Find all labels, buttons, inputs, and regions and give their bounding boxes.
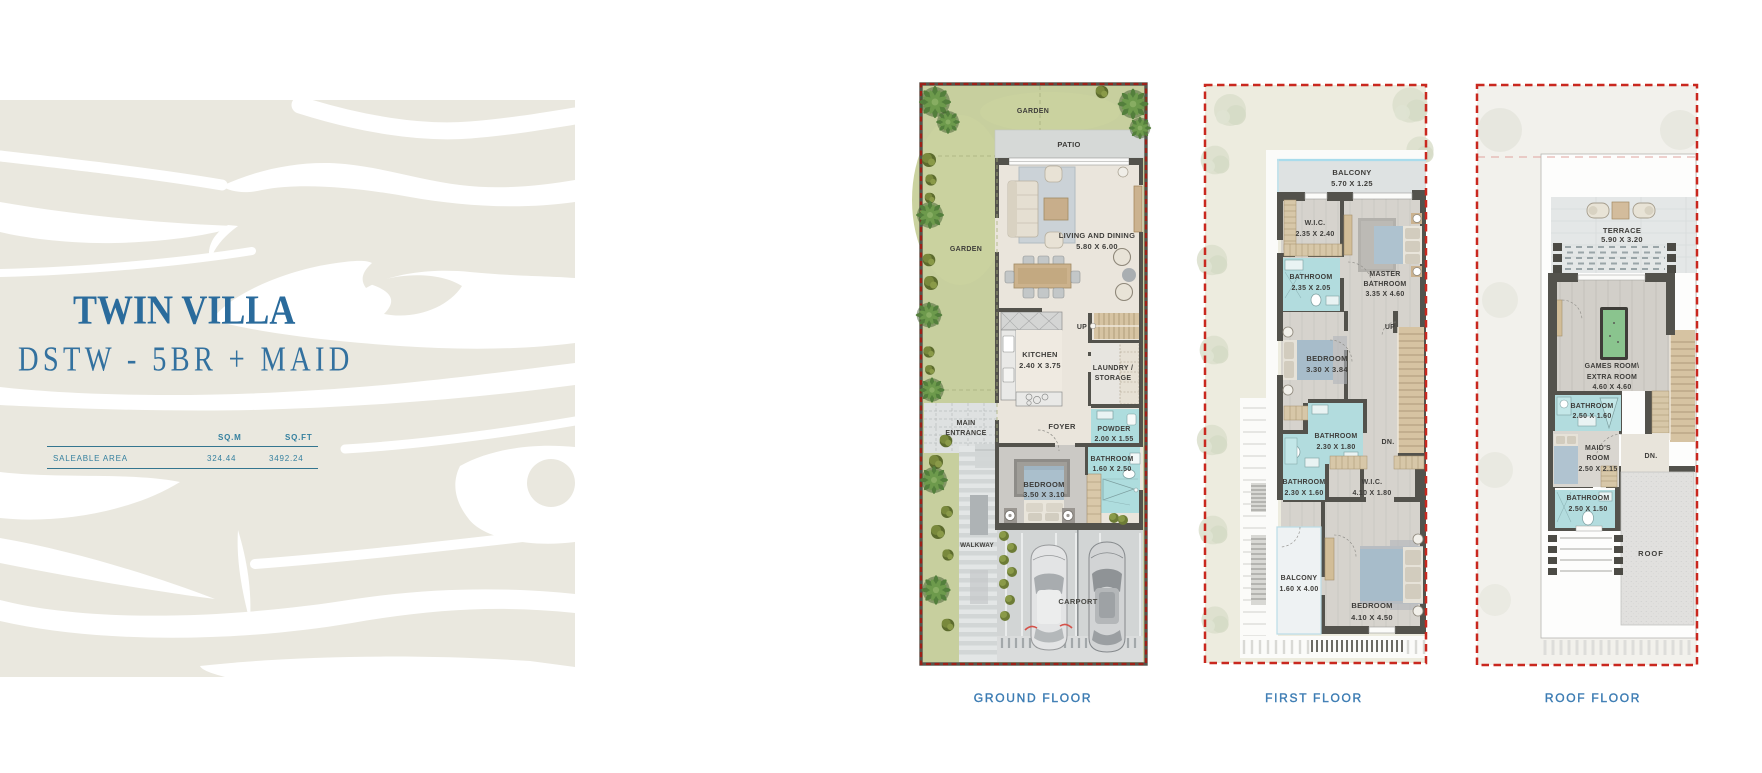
svg-text:GARDEN: GARDEN xyxy=(950,246,982,253)
svg-text:WALKWAY: WALKWAY xyxy=(960,542,994,549)
svg-text:PATIO: PATIO xyxy=(1057,140,1080,149)
svg-text:DN.: DN. xyxy=(1382,439,1395,446)
svg-text:TERRACE: TERRACE xyxy=(1603,226,1641,235)
svg-text:W.I.C.: W.I.C. xyxy=(1305,220,1326,227)
svg-text:5.70 X 1.25: 5.70 X 1.25 xyxy=(1331,179,1373,188)
svg-text:BALCONY: BALCONY xyxy=(1332,168,1371,177)
svg-text:LIVING AND DINING: LIVING AND DINING xyxy=(1059,231,1136,240)
svg-text:UP: UP xyxy=(1077,324,1087,331)
svg-text:STORAGE: STORAGE xyxy=(1095,375,1132,382)
svg-text:5.80 X 6.00: 5.80 X 6.00 xyxy=(1076,242,1118,251)
svg-text:BATHROOM: BATHROOM xyxy=(1363,281,1406,288)
svg-text:LAUNDRY /: LAUNDRY / xyxy=(1093,365,1133,372)
svg-text:BATHROOM: BATHROOM xyxy=(1282,479,1325,486)
svg-text:W.I.C.: W.I.C. xyxy=(1362,479,1383,486)
svg-text:ROOF: ROOF xyxy=(1638,549,1664,558)
svg-text:POWDER: POWDER xyxy=(1097,426,1130,433)
svg-text:2.50 X 1.50: 2.50 X 1.50 xyxy=(1568,506,1607,513)
svg-text:4.60 X 4.60: 4.60 X 4.60 xyxy=(1592,384,1631,391)
svg-text:GARDEN: GARDEN xyxy=(1017,108,1049,115)
svg-text:2.30 X 1.60: 2.30 X 1.60 xyxy=(1284,490,1323,497)
svg-text:MAIN: MAIN xyxy=(956,420,975,427)
svg-text:FOYER: FOYER xyxy=(1048,422,1076,431)
svg-text:DN.: DN. xyxy=(1645,453,1658,460)
svg-text:BEDROOM: BEDROOM xyxy=(1351,601,1392,610)
svg-text:3.35 X 4.60: 3.35 X 4.60 xyxy=(1365,291,1404,298)
svg-text:3.50 X 3.10: 3.50 X 3.10 xyxy=(1023,490,1065,499)
svg-text:2.00 X 1.55: 2.00 X 1.55 xyxy=(1094,436,1133,443)
svg-text:MAID'S: MAID'S xyxy=(1585,445,1611,452)
svg-text:1.60 X 2.50: 1.60 X 2.50 xyxy=(1092,466,1131,473)
svg-text:BEDROOM: BEDROOM xyxy=(1023,480,1064,489)
svg-text:BATHROOM: BATHROOM xyxy=(1314,433,1357,440)
svg-text:1.60 X 4.00: 1.60 X 4.00 xyxy=(1279,586,1318,593)
svg-text:BATHROOM: BATHROOM xyxy=(1566,495,1609,502)
svg-text:BATHROOM: BATHROOM xyxy=(1090,456,1133,463)
svg-text:ENTRANCE: ENTRANCE xyxy=(945,430,986,437)
svg-text:ROOM: ROOM xyxy=(1587,455,1610,462)
svg-text:BEDROOM: BEDROOM xyxy=(1306,354,1347,363)
svg-text:2.40 X 3.75: 2.40 X 3.75 xyxy=(1019,361,1061,370)
svg-text:2.50 X 1.60: 2.50 X 1.60 xyxy=(1572,413,1611,420)
svg-text:GAMES ROOM\: GAMES ROOM\ xyxy=(1585,363,1640,370)
svg-text:CARPORT: CARPORT xyxy=(1058,597,1097,606)
svg-text:EXTRA ROOM: EXTRA ROOM xyxy=(1587,374,1637,381)
svg-text:BATHROOM: BATHROOM xyxy=(1289,274,1332,281)
svg-text:5.90 X 3.20: 5.90 X 3.20 xyxy=(1601,235,1643,244)
svg-text:BALCONY: BALCONY xyxy=(1281,575,1318,582)
svg-text:4.10 X 4.50: 4.10 X 4.50 xyxy=(1351,613,1393,622)
svg-text:BATHROOM: BATHROOM xyxy=(1570,403,1613,410)
svg-text:2.35 X 2.40: 2.35 X 2.40 xyxy=(1295,231,1334,238)
svg-text:4.10 X 1.80: 4.10 X 1.80 xyxy=(1352,490,1391,497)
svg-text:2.50 X 2.15: 2.50 X 2.15 xyxy=(1578,466,1617,473)
svg-text:2.30 X 1.80: 2.30 X 1.80 xyxy=(1316,444,1355,451)
svg-text:MASTER: MASTER xyxy=(1369,271,1400,278)
svg-text:2.35 X 2.05: 2.35 X 2.05 xyxy=(1291,285,1330,292)
svg-text:UP: UP xyxy=(1385,324,1395,331)
svg-text:KITCHEN: KITCHEN xyxy=(1022,350,1057,359)
svg-text:3.30 X 3.84: 3.30 X 3.84 xyxy=(1306,365,1348,374)
